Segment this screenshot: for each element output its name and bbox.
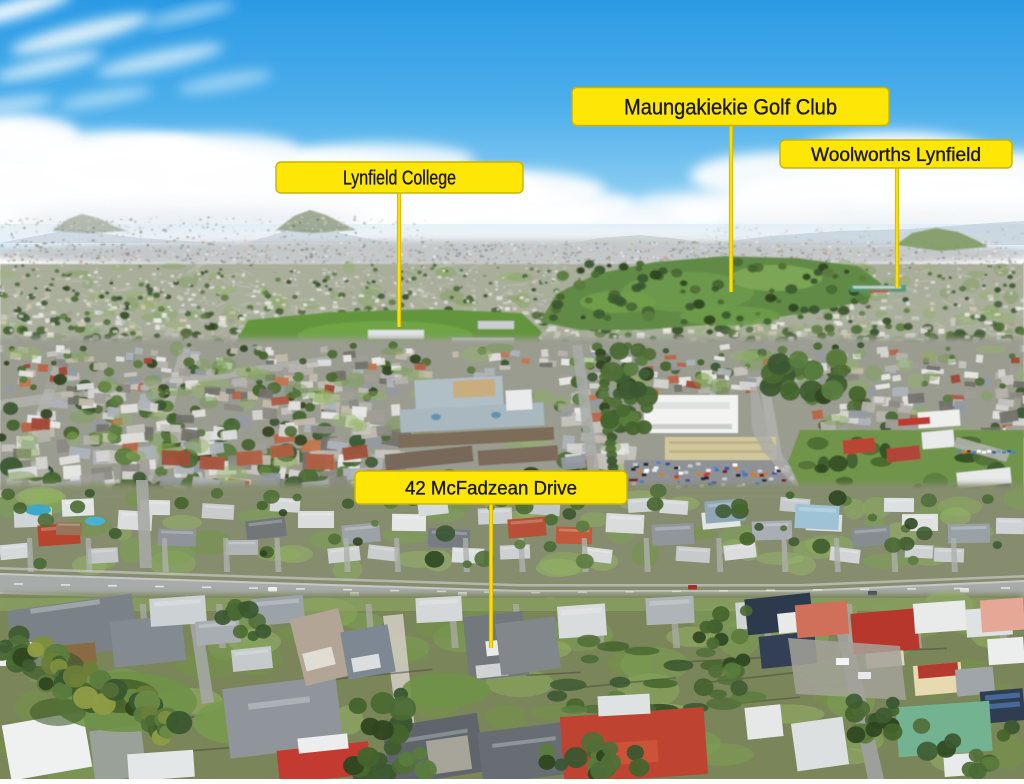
svg-text:Woolworths Lynfield: Woolworths Lynfield (811, 145, 981, 166)
svg-text:Lynfield College: Lynfield College (343, 168, 456, 190)
svg-text:Maungakiekie Golf Club: Maungakiekie Golf Club (624, 94, 837, 119)
svg-text:42 McFadzean Drive: 42 McFadzean Drive (405, 478, 577, 500)
